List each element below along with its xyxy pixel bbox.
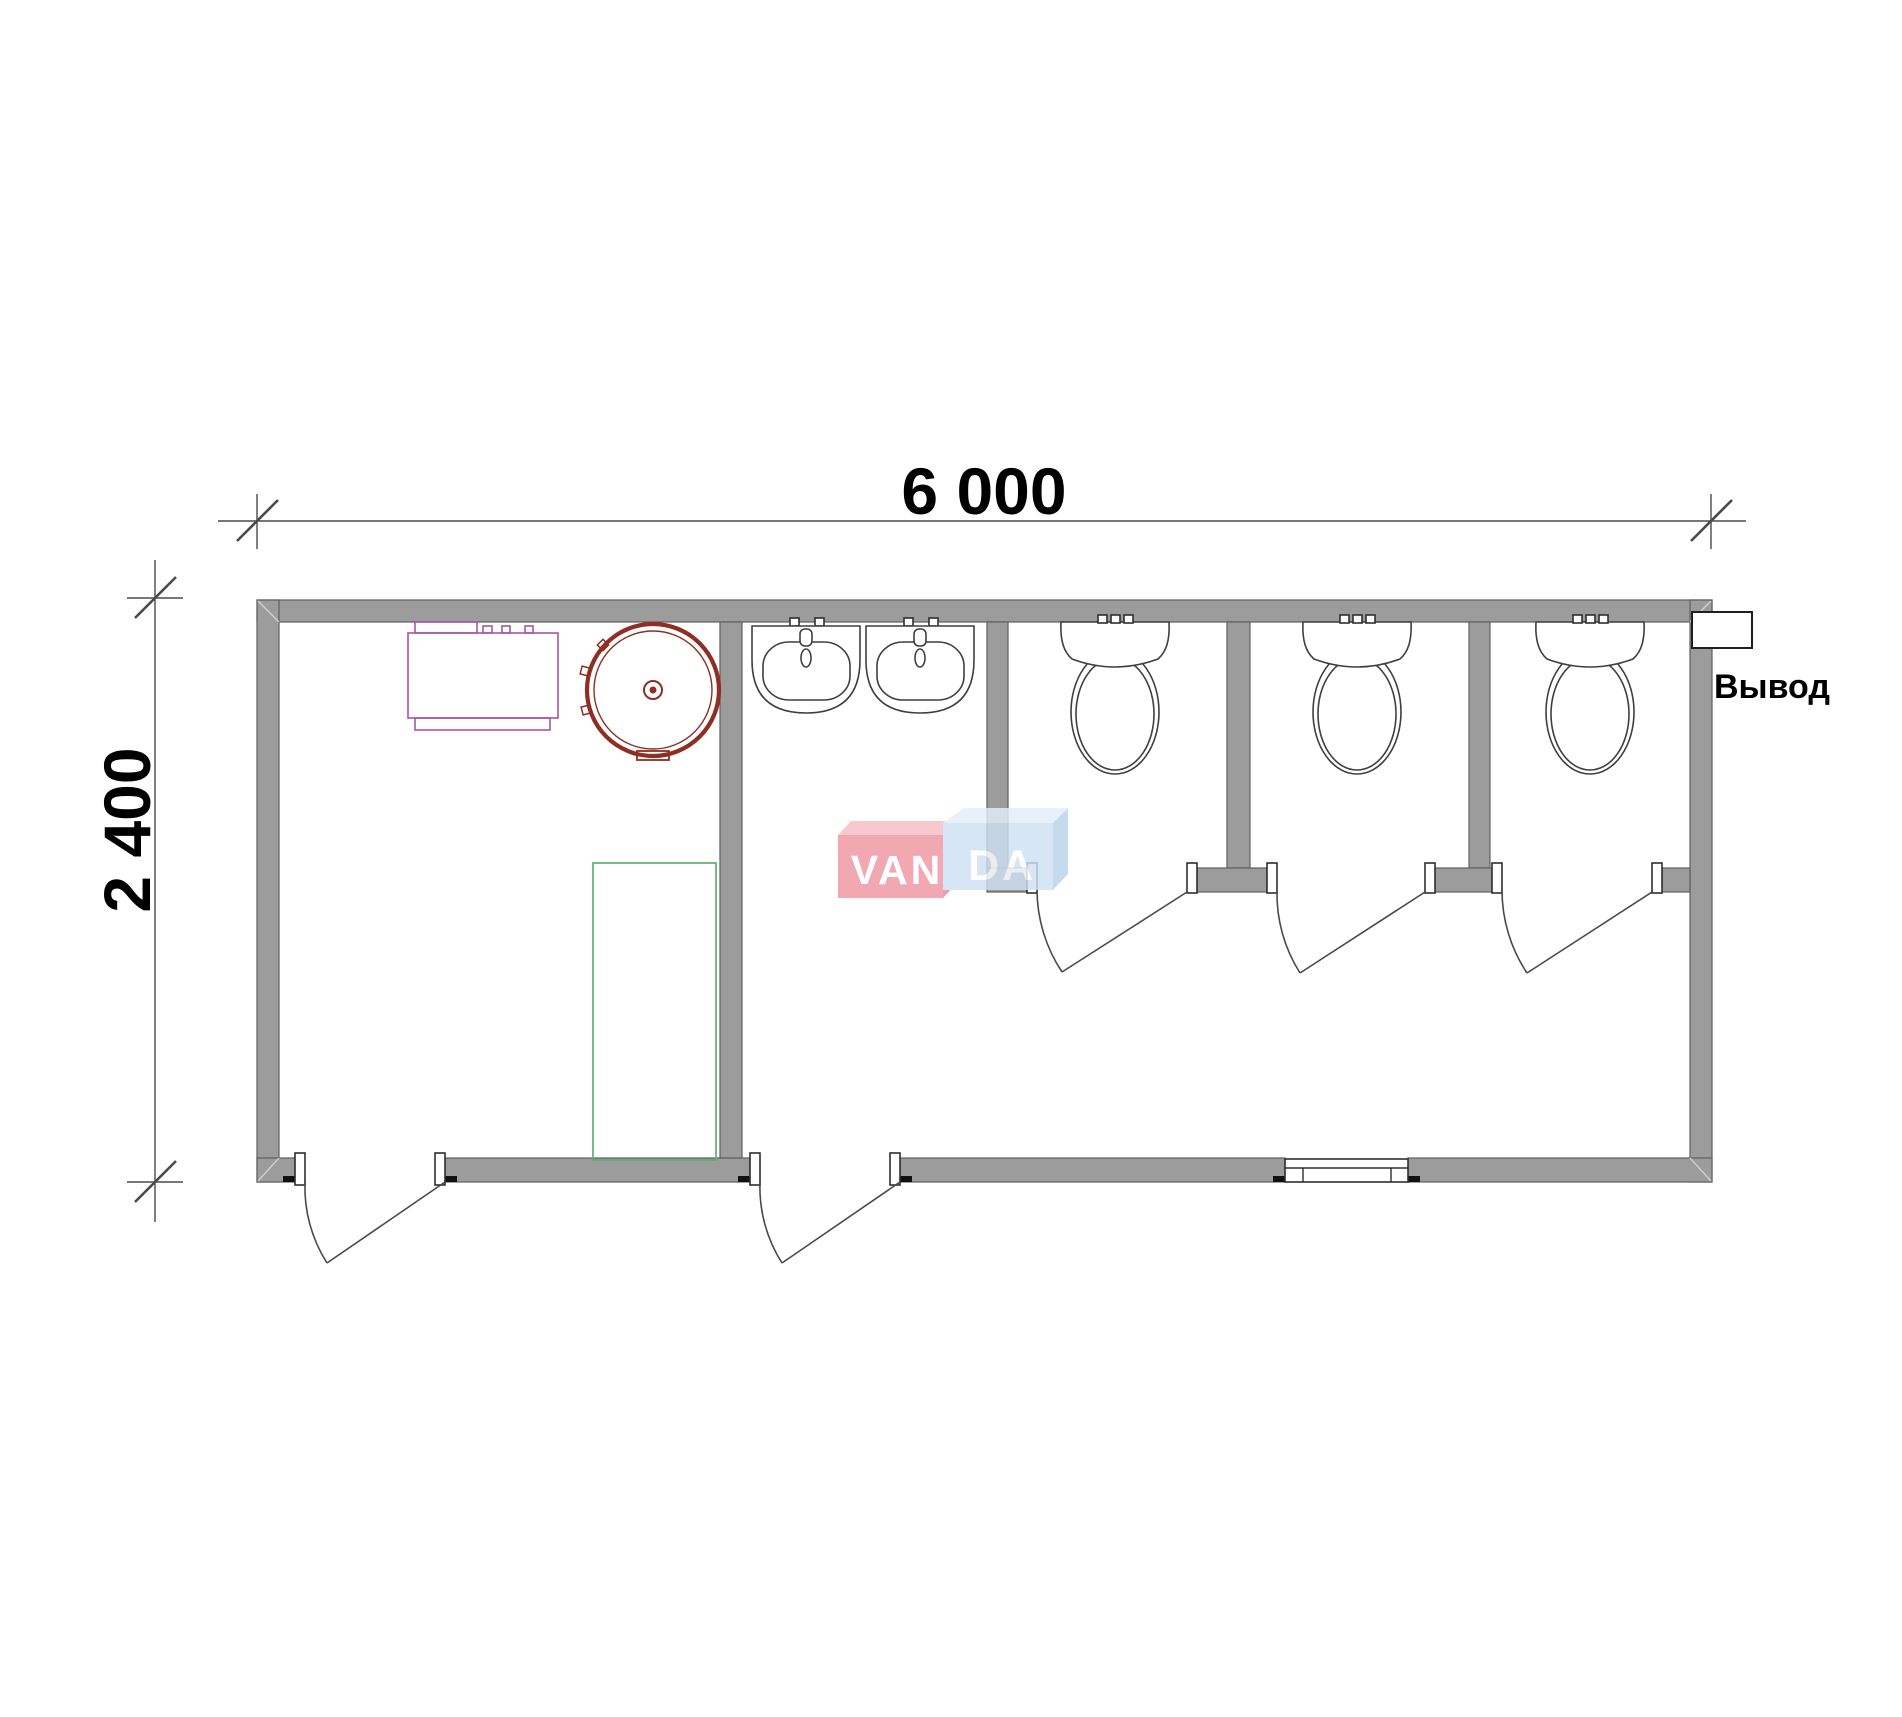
door-stall-1 bbox=[1037, 890, 1187, 972]
dimension-height: 2 400 bbox=[90, 560, 183, 1222]
outlet-label: Вывод bbox=[1714, 668, 1830, 706]
cap-door2-right bbox=[900, 1176, 912, 1182]
partition-stall-2-3-stub bbox=[1435, 868, 1492, 892]
wall-bottom-seg4 bbox=[1408, 1158, 1712, 1182]
partition-stall-2-3 bbox=[1469, 622, 1490, 868]
utility-outlet: Вывод bbox=[1692, 612, 1830, 706]
wall-left bbox=[257, 600, 279, 1182]
jamb-entry2-right bbox=[890, 1153, 900, 1185]
door-jambs bbox=[295, 863, 1662, 1185]
tank-tab-2 bbox=[580, 666, 590, 676]
dimension-width: 6 000 bbox=[218, 454, 1746, 549]
jamb-entry1-left bbox=[295, 1153, 305, 1185]
toilet-button-1 bbox=[1098, 615, 1107, 623]
partition-stall-1-2 bbox=[1227, 622, 1250, 868]
partition-left-room bbox=[720, 622, 742, 1158]
toilet-tank bbox=[1061, 622, 1169, 667]
watermark-text-van: VAN bbox=[851, 847, 944, 893]
boiler-unit bbox=[408, 622, 558, 730]
toilet-bowl-outer bbox=[1071, 650, 1159, 774]
partition-stall-3-stub bbox=[1662, 868, 1690, 892]
doors bbox=[305, 890, 1652, 1263]
toilet-bowl-inner bbox=[1076, 658, 1154, 770]
boiler-body bbox=[408, 633, 558, 718]
watermark-text-da: DA bbox=[968, 842, 1036, 890]
cap-door1-right bbox=[445, 1176, 457, 1182]
toilet-bowl-inner bbox=[1318, 658, 1396, 770]
jamb-entry1-right bbox=[435, 1153, 445, 1185]
jamb-stall2-right bbox=[1425, 863, 1435, 893]
wall-right bbox=[1690, 600, 1712, 1182]
door-leaf bbox=[1062, 892, 1187, 972]
toilet-button-3 bbox=[1599, 615, 1608, 623]
basin-faucet-spout bbox=[801, 649, 811, 667]
watermark-blue-top bbox=[943, 808, 1068, 823]
outlet-box bbox=[1692, 612, 1752, 648]
basin-bracket-right bbox=[929, 618, 938, 626]
door-stall-2 bbox=[1277, 890, 1425, 973]
toilet-tank bbox=[1536, 622, 1644, 667]
window bbox=[1285, 1159, 1408, 1182]
watermark-logo: VAN DA bbox=[838, 808, 1068, 898]
shower-tray bbox=[593, 863, 716, 1160]
washbasin-2 bbox=[866, 618, 974, 713]
partition-stall-1-2-stub bbox=[1197, 868, 1267, 892]
cap-window-left bbox=[1273, 1176, 1285, 1182]
jamb-stall1-right bbox=[1187, 863, 1197, 893]
wall-bottom-seg2 bbox=[445, 1158, 750, 1182]
jamb-stall3-right bbox=[1652, 863, 1662, 893]
jamb-stall3-left bbox=[1492, 863, 1502, 893]
washbasin-1 bbox=[752, 618, 860, 713]
toilet-tank bbox=[1303, 622, 1411, 667]
toilet-bowl-outer bbox=[1313, 650, 1401, 774]
jamb-entry2-left bbox=[750, 1153, 760, 1185]
toilet-bowl-outer bbox=[1546, 650, 1634, 774]
water-tank bbox=[580, 624, 719, 760]
door-arc bbox=[1502, 890, 1527, 973]
door-stall-3 bbox=[1502, 890, 1652, 973]
basin-bracket-right bbox=[815, 618, 824, 626]
toilet-button-3 bbox=[1124, 615, 1133, 623]
jamb-stall2-left bbox=[1267, 863, 1277, 893]
floor-plan-canvas: 6 000 2 400 bbox=[0, 0, 1902, 1717]
tank-tab-3 bbox=[581, 705, 591, 715]
boiler-top-flange bbox=[415, 622, 477, 633]
toilet-button-2 bbox=[1111, 615, 1120, 623]
toilet-button-3 bbox=[1366, 615, 1375, 623]
door-left-room bbox=[305, 1182, 445, 1263]
door-arc bbox=[1277, 890, 1300, 973]
dimension-width-label: 6 000 bbox=[901, 454, 1066, 528]
boiler-connector-3 bbox=[525, 626, 533, 633]
door-leaf bbox=[327, 1182, 445, 1263]
toilet-2 bbox=[1303, 615, 1411, 774]
boiler-connector-1 bbox=[483, 626, 492, 633]
basin-faucet bbox=[914, 629, 926, 646]
watermark-pink-top bbox=[838, 821, 956, 835]
door-leaf bbox=[1527, 892, 1652, 973]
basin-faucet bbox=[800, 629, 812, 646]
door-leaf bbox=[782, 1182, 900, 1263]
boiler-connector-2 bbox=[502, 626, 510, 633]
toilet-button-2 bbox=[1586, 615, 1595, 623]
cap-door2-left bbox=[738, 1176, 750, 1182]
toilet-1 bbox=[1061, 615, 1169, 774]
dimension-height-label: 2 400 bbox=[90, 747, 164, 912]
boiler-bottom-flange bbox=[415, 718, 550, 730]
basin-bracket-left bbox=[790, 618, 799, 626]
door-washroom bbox=[760, 1182, 900, 1263]
cap-window-right bbox=[1408, 1176, 1420, 1182]
toilet-3 bbox=[1536, 615, 1644, 774]
toilet-button-2 bbox=[1353, 615, 1362, 623]
toilet-button-1 bbox=[1573, 615, 1582, 623]
door-arc bbox=[760, 1182, 782, 1263]
basin-bracket-left bbox=[904, 618, 913, 626]
toilet-button-1 bbox=[1340, 615, 1349, 623]
toilet-bowl-inner bbox=[1551, 658, 1629, 770]
basin-faucet-spout bbox=[915, 649, 925, 667]
door-arc bbox=[1037, 890, 1062, 972]
wall-top bbox=[257, 600, 1712, 622]
door-arc bbox=[305, 1182, 327, 1263]
wall-bottom-seg3 bbox=[900, 1158, 1285, 1182]
tank-center-dot bbox=[650, 687, 657, 694]
door-leaf bbox=[1300, 892, 1425, 973]
cap-door1-left bbox=[283, 1176, 295, 1182]
